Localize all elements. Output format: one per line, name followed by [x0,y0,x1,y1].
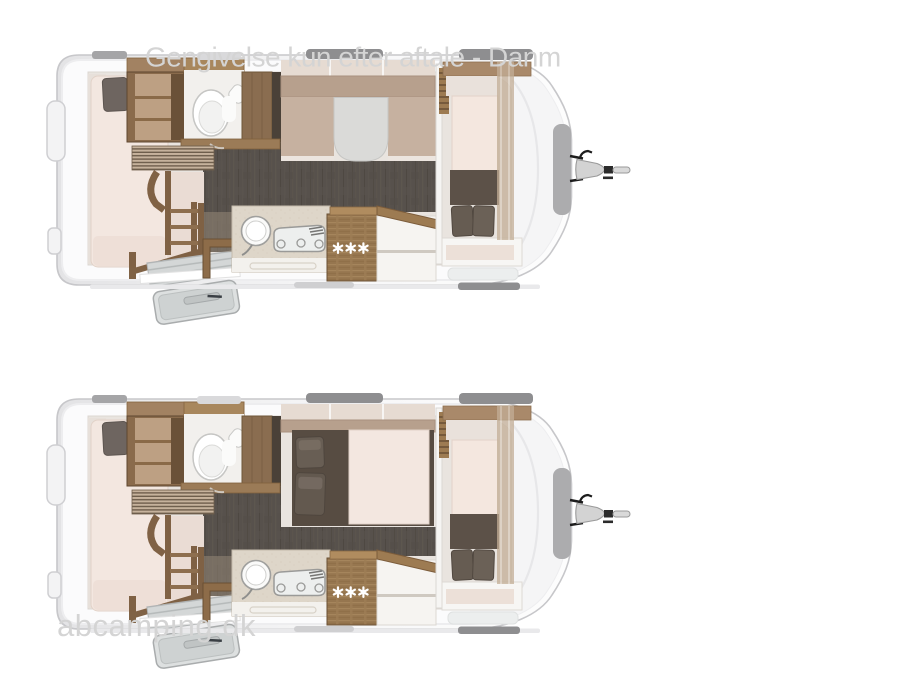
svg-text:abcamping.dk: abcamping.dk [57,608,256,643]
svg-text:Gengivelse kun efter aftale -: Gengivelse kun efter aftale - Danm [145,42,561,73]
